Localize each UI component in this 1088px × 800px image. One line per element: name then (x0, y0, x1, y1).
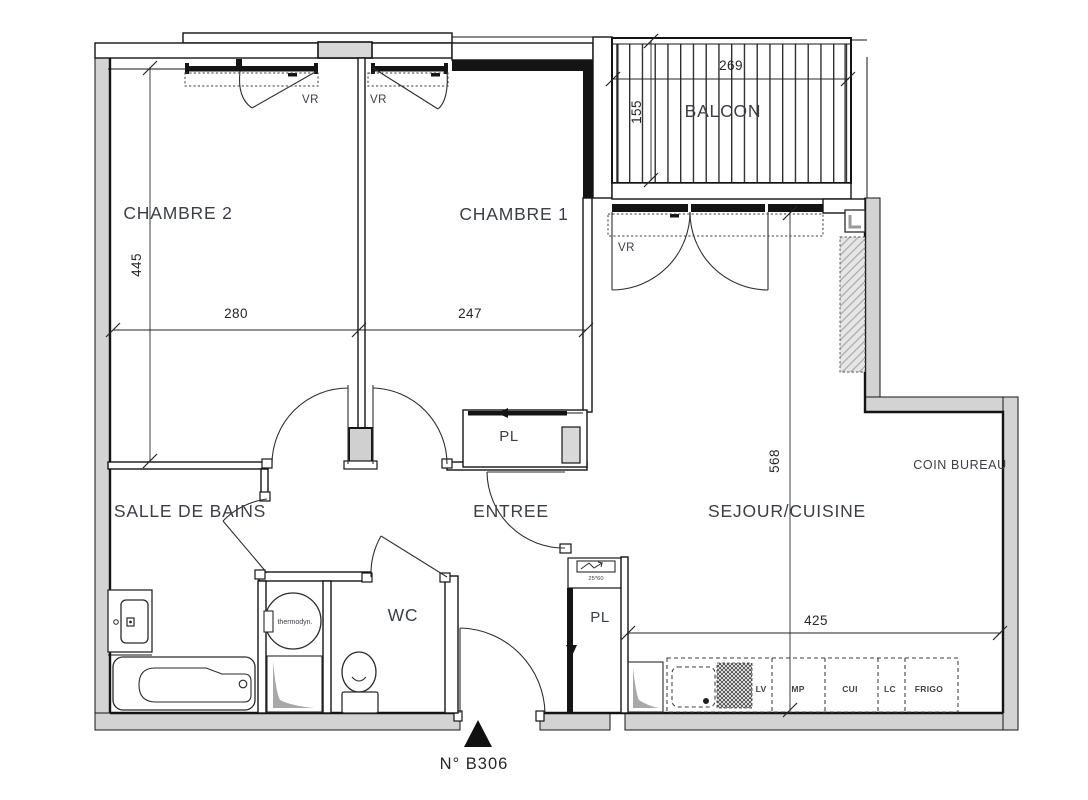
closet-cuisine: 25*60 PL (566, 557, 628, 713)
facade-band-left (95, 43, 452, 58)
window-pier (318, 42, 372, 58)
label-entree: ENTREE (473, 501, 549, 521)
floor-plan-drawing: VR VR VR (0, 0, 1088, 800)
entrance-arrow-icon (464, 720, 492, 747)
jamb (262, 459, 272, 468)
door-swing-right (690, 212, 768, 290)
wc-fixtures (342, 652, 378, 713)
label-sejour-cuisine: SEJOUR/CUISINE (708, 501, 866, 521)
closet-label: PL (499, 428, 519, 445)
label-coin-bureau: COIN BUREAU (913, 458, 1006, 472)
downspout-box (845, 210, 865, 232)
kitchen-unit-cui: CUI (842, 684, 858, 694)
exterior-wall-bottom-right (625, 713, 1018, 730)
unit-number: N° B306 (440, 755, 509, 773)
interior-walls (108, 58, 592, 713)
kitchen-unit-mp: MP (791, 684, 804, 694)
facade-windows: VR VR (95, 33, 612, 198)
dim-sejour-width: 425 (621, 613, 1007, 640)
kitchen-tap (703, 698, 709, 704)
wall-solid-chambre1-top (452, 60, 593, 71)
door-wc (371, 536, 447, 577)
kitchen-unit-lc: LC (884, 684, 896, 694)
window-mullion (236, 59, 242, 71)
closet-label: PL (590, 609, 610, 626)
door-chambre1 (373, 385, 447, 464)
label-balcon: BALCON (685, 101, 762, 121)
door-chambre2 (272, 385, 348, 464)
balcony-french-door (608, 204, 823, 290)
svg-text:269: 269 (719, 58, 743, 73)
door-entrance (460, 628, 545, 713)
svg-text:445: 445 (129, 253, 144, 277)
window-swing-arc (240, 71, 253, 108)
exterior-wall-step (865, 397, 1018, 412)
window-handle (288, 73, 297, 77)
balcony: VR (608, 38, 867, 372)
wall-bathroom-divider (258, 581, 266, 713)
closet-right-wall (621, 557, 628, 713)
water-heater-label: thermodyn. (277, 619, 312, 626)
roller-shutter-box (608, 214, 823, 236)
wall-chambres-south-left (108, 462, 267, 469)
closet-pier (562, 427, 580, 463)
shutter-label-chambre1: VR (370, 94, 387, 106)
exterior-wall-right-lower (1003, 397, 1018, 730)
svg-text:425: 425 (804, 613, 828, 628)
svg-text:280: 280 (224, 306, 248, 321)
kitchen-sink-drainer (717, 663, 752, 708)
label-chambre1: CHAMBRE 1 (459, 204, 568, 224)
closet-entree: PL (463, 408, 587, 467)
exterior-walls (95, 56, 1018, 730)
exterior-wall-bottom-mid (540, 713, 610, 730)
wall-wc-divider (323, 581, 331, 713)
window-chambre2 (185, 59, 318, 108)
shutter-label-chambre2: VR (302, 94, 319, 106)
window-handle (431, 73, 440, 77)
jamb (255, 570, 265, 579)
washbasin-drain-dot (129, 621, 132, 624)
facade-return-lines (851, 40, 867, 198)
svg-text:568: 568 (767, 449, 782, 473)
toilet-bowl (342, 652, 376, 692)
dim-chambre2-height: 445 (129, 61, 157, 468)
wall-fixtures-north (259, 572, 371, 581)
floor-plan-page: VR VR VR (0, 0, 1088, 800)
roller-shutter-box (185, 73, 318, 86)
exterior-wall-right-upper (865, 198, 880, 412)
facade-band-chambre1 (452, 43, 593, 60)
dim-sejour-height: 568 (767, 206, 797, 717)
dim-chambres-widths: 280 247 (106, 306, 593, 337)
electric-panel-label: 25*60 (588, 576, 603, 582)
door-pier-base (344, 461, 377, 469)
shutter-label-balcony: VR (618, 242, 635, 254)
kitchen: LV MP CUI LC FRIGO (628, 658, 958, 712)
wall-solid-chambre1-right (583, 60, 593, 198)
bathroom-fixtures: thermodyn. (108, 590, 322, 712)
water-heater-notch (264, 611, 273, 632)
wall-inner-edge-right (865, 198, 1003, 713)
siphon-slope-icon (633, 668, 659, 708)
technical-shaft (840, 237, 865, 372)
svg-text:247: 247 (458, 306, 482, 321)
entrance-jamb-right (536, 711, 544, 721)
balcony-side-wall (593, 37, 612, 198)
kitchen-unit-lv: LV (756, 684, 767, 694)
exterior-wall-bottom-left (95, 713, 460, 730)
door-pier (349, 428, 372, 464)
kitchen-unit-frigo: FRIGO (915, 684, 944, 694)
wall-entree-sejour (583, 198, 592, 412)
sliding-door-track (468, 411, 567, 416)
label-salle-de-bains: SALLE DE BAINS (114, 501, 266, 521)
label-wc: WC (388, 605, 419, 625)
svg-text:155: 155 (629, 100, 644, 124)
wall-chambre-divider (358, 58, 365, 428)
jamb (440, 573, 450, 582)
window-swing-arc (438, 71, 447, 109)
balcony-floor-band (612, 183, 851, 199)
shower-slope-icon (273, 661, 315, 708)
toilet-tank (342, 692, 378, 713)
door-handle (670, 214, 679, 218)
label-chambre2: CHAMBRE 2 (123, 203, 232, 223)
wall-wc-entree (445, 576, 458, 713)
